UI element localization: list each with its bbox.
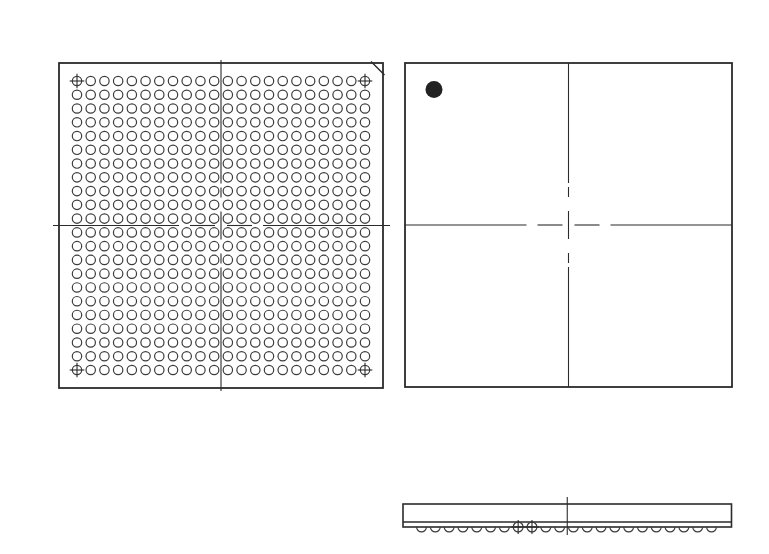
- solder-ball-pad: [333, 228, 342, 237]
- solder-ball-pad: [305, 228, 314, 237]
- solder-ball-pad: [182, 296, 191, 305]
- solder-ball-pad: [251, 76, 260, 85]
- solder-ball-pad: [113, 241, 122, 250]
- solder-ball-pad: [113, 186, 122, 195]
- solder-ball-pad: [141, 159, 150, 168]
- solder-ball-pad: [237, 352, 246, 361]
- solder-ball-pad: [72, 200, 81, 209]
- solder-ball-pad: [196, 310, 205, 319]
- solder-ball-pad: [305, 352, 314, 361]
- solder-ball-pad: [278, 76, 287, 85]
- solder-ball-pad: [72, 324, 81, 333]
- solder-ball-pad: [251, 296, 260, 305]
- solder-ball-pad: [168, 118, 177, 127]
- solder-ball-pad: [113, 310, 122, 319]
- solder-ball-pad: [72, 283, 81, 292]
- solder-ball-pad: [319, 283, 328, 292]
- solder-ball-pad: [223, 131, 232, 140]
- solder-ball-pad: [305, 338, 314, 347]
- solder-ball-pad: [292, 186, 301, 195]
- solder-ball-pad: [168, 90, 177, 99]
- solder-ball-pad: [86, 186, 95, 195]
- solder-ball-pad: [347, 90, 356, 99]
- solder-ball-pad: [319, 296, 328, 305]
- package-drawing-canvas: [0, 0, 769, 554]
- solder-ball-pad: [223, 76, 232, 85]
- solder-ball-pad: [209, 228, 218, 237]
- solder-ball-pad: [237, 173, 246, 182]
- solder-ball-pad: [86, 104, 95, 113]
- solder-ball-pad: [278, 338, 287, 347]
- solder-ball-pad: [141, 310, 150, 319]
- solder-ball-pad: [319, 131, 328, 140]
- package-top-view: [405, 63, 732, 387]
- solder-ball-pad: [209, 76, 218, 85]
- solder-ball-pad: [196, 104, 205, 113]
- solder-ball-pad: [141, 131, 150, 140]
- solder-ball-pad: [72, 338, 81, 347]
- solder-ball-pad: [237, 104, 246, 113]
- solder-ball-pad: [251, 255, 260, 264]
- solder-ball-pad: [209, 131, 218, 140]
- solder-ball-pad: [223, 159, 232, 168]
- solder-ball-pad: [347, 269, 356, 278]
- solder-ball-pad: [347, 76, 356, 85]
- solder-ball-pad: [251, 214, 260, 223]
- solder-ball-pad: [127, 145, 136, 154]
- solder-ball-pad: [86, 145, 95, 154]
- solder-ball-pad: [319, 90, 328, 99]
- solder-ball-pad: [72, 214, 81, 223]
- solder-ball-pad: [196, 118, 205, 127]
- solder-ball-pad: [182, 365, 191, 374]
- solder-ball-pad: [347, 173, 356, 182]
- solder-ball-pad: [264, 296, 273, 305]
- solder-ball-pad: [237, 159, 246, 168]
- solder-ball-pad: [237, 310, 246, 319]
- solder-ball-pad: [209, 241, 218, 250]
- solder-ball-pad: [333, 159, 342, 168]
- solder-ball-pad: [86, 338, 95, 347]
- solder-ball-pad: [196, 365, 205, 374]
- solder-ball-pad: [360, 241, 369, 250]
- solder-ball-pad: [86, 269, 95, 278]
- solder-ball-pad: [155, 214, 164, 223]
- solder-ball-pad: [127, 214, 136, 223]
- solder-ball-pad: [168, 200, 177, 209]
- solder-ball-pad: [182, 145, 191, 154]
- solder-ball-pad: [305, 241, 314, 250]
- solder-ball-pad: [182, 283, 191, 292]
- solder-ball-pad: [237, 269, 246, 278]
- solder-ball-pad: [196, 159, 205, 168]
- solder-ball-pad: [237, 90, 246, 99]
- solder-ball-pad: [264, 310, 273, 319]
- solder-ball-pad: [251, 310, 260, 319]
- solder-ball-pad: [168, 76, 177, 85]
- solder-ball-pad: [278, 90, 287, 99]
- solder-ball-pad: [333, 186, 342, 195]
- solder-ball-pad: [127, 365, 136, 374]
- solder-ball-pad: [347, 352, 356, 361]
- solder-ball-pad: [86, 118, 95, 127]
- solder-ball-pad: [305, 365, 314, 374]
- solder-ball-pad: [127, 338, 136, 347]
- solder-ball-pad: [209, 118, 218, 127]
- solder-ball-pad: [113, 200, 122, 209]
- solder-ball-pad: [100, 365, 109, 374]
- solder-ball-pad: [196, 131, 205, 140]
- solder-ball-pad: [168, 131, 177, 140]
- solder-ball-pad: [223, 173, 232, 182]
- solder-ball-pad: [155, 173, 164, 182]
- solder-ball-pad: [264, 159, 273, 168]
- solder-ball-pad: [292, 200, 301, 209]
- solder-ball-pad: [100, 338, 109, 347]
- solder-ball-pad: [305, 324, 314, 333]
- solder-ball-pad: [141, 76, 150, 85]
- solder-ball-pad: [182, 241, 191, 250]
- solder-ball-pad: [264, 283, 273, 292]
- solder-ball-pad: [251, 145, 260, 154]
- solder-ball-pad: [168, 159, 177, 168]
- solder-ball-pad: [223, 283, 232, 292]
- solder-ball-pad: [100, 186, 109, 195]
- solder-ball-pad: [305, 173, 314, 182]
- solder-ball-pad: [127, 76, 136, 85]
- solder-ball-pad: [113, 159, 122, 168]
- solder-ball-pad: [127, 159, 136, 168]
- solder-ball-pad: [278, 214, 287, 223]
- solder-ball-pad: [360, 90, 369, 99]
- solder-ball-pad: [264, 269, 273, 278]
- solder-ball-pad: [155, 241, 164, 250]
- solder-ball-pad: [209, 352, 218, 361]
- solder-ball-pad: [100, 228, 109, 237]
- solder-ball-pad: [127, 352, 136, 361]
- solder-ball-pad: [264, 228, 273, 237]
- solder-ball-pad: [141, 90, 150, 99]
- solder-ball-pad: [347, 118, 356, 127]
- solder-ball-pad: [209, 145, 218, 154]
- solder-ball-pad: [168, 214, 177, 223]
- solder-ball-pad: [292, 352, 301, 361]
- solder-ball-pad: [141, 118, 150, 127]
- solder-ball-pad: [168, 104, 177, 113]
- solder-ball-pad: [264, 338, 273, 347]
- solder-ball-pad: [127, 173, 136, 182]
- solder-ball-pad: [72, 228, 81, 237]
- solder-ball-pad: [113, 118, 122, 127]
- solder-ball-pad: [141, 214, 150, 223]
- solder-ball-pad: [168, 365, 177, 374]
- solder-ball-pad: [100, 214, 109, 223]
- solder-ball-pad: [113, 173, 122, 182]
- solder-ball-pad: [305, 76, 314, 85]
- solder-ball-pad: [292, 145, 301, 154]
- solder-ball-pad: [333, 118, 342, 127]
- solder-ball-pad: [305, 214, 314, 223]
- solder-ball-pad: [278, 324, 287, 333]
- solder-ball-pad: [237, 283, 246, 292]
- solder-ball-pad: [72, 269, 81, 278]
- solder-ball-pad: [333, 76, 342, 85]
- solder-ball-pad: [319, 200, 328, 209]
- solder-ball-pad: [86, 90, 95, 99]
- solder-ball-pad: [100, 310, 109, 319]
- solder-ball-pad: [319, 352, 328, 361]
- solder-ball-pad: [264, 76, 273, 85]
- solder-ball-pad: [278, 200, 287, 209]
- solder-ball-pad: [305, 200, 314, 209]
- solder-ball-pad: [72, 241, 81, 250]
- solder-ball-pad: [347, 283, 356, 292]
- solder-ball-pad: [100, 145, 109, 154]
- solder-ball-pad: [278, 228, 287, 237]
- solder-ball-pad: [113, 76, 122, 85]
- solder-ball-pad: [223, 338, 232, 347]
- solder-ball-pad: [333, 338, 342, 347]
- solder-ball-pad: [292, 324, 301, 333]
- solder-ball-pad: [278, 352, 287, 361]
- solder-ball-pad: [209, 310, 218, 319]
- solder-ball-pad: [223, 186, 232, 195]
- solder-ball-pad: [305, 118, 314, 127]
- solder-ball-pad: [292, 310, 301, 319]
- solder-ball-pad: [141, 324, 150, 333]
- solder-ball-pad: [168, 145, 177, 154]
- solder-ball-pad: [223, 324, 232, 333]
- solder-ball-pad: [292, 365, 301, 374]
- solder-ball-pad: [278, 241, 287, 250]
- solder-ball-pad: [347, 186, 356, 195]
- solder-ball-pad: [360, 200, 369, 209]
- solder-ball-pad: [100, 255, 109, 264]
- solder-ball-pad: [100, 352, 109, 361]
- solder-ball-pad: [319, 255, 328, 264]
- solder-ball-pad: [264, 173, 273, 182]
- solder-ball-pad: [86, 324, 95, 333]
- solder-ball-pad: [264, 90, 273, 99]
- solder-ball-pad: [127, 186, 136, 195]
- solder-ball-pad: [86, 159, 95, 168]
- solder-ball-pad: [237, 186, 246, 195]
- solder-ball-pad: [278, 173, 287, 182]
- solder-ball-pad: [347, 228, 356, 237]
- solder-ball-pad: [155, 283, 164, 292]
- solder-ball-pad: [347, 131, 356, 140]
- solder-ball-pad: [360, 104, 369, 113]
- solder-ball-pad: [168, 269, 177, 278]
- solder-ball-pad: [292, 283, 301, 292]
- solder-ball-pad: [333, 255, 342, 264]
- solder-ball-pad: [278, 283, 287, 292]
- solder-ball-pad: [278, 118, 287, 127]
- solder-ball-pad: [113, 104, 122, 113]
- solder-ball-pad: [237, 338, 246, 347]
- solder-ball-pad: [333, 365, 342, 374]
- solder-ball-pad: [168, 228, 177, 237]
- solder-ball-pad: [155, 296, 164, 305]
- solder-ball-pad: [292, 214, 301, 223]
- solder-ball-pad: [292, 269, 301, 278]
- solder-ball-pad: [86, 200, 95, 209]
- solder-ball-pad: [155, 269, 164, 278]
- solder-ball-pad: [251, 159, 260, 168]
- solder-ball-pad: [305, 269, 314, 278]
- solder-ball-pad: [319, 228, 328, 237]
- solder-ball-pad: [333, 90, 342, 99]
- solder-ball-pad: [182, 338, 191, 347]
- solder-ball-pad: [182, 118, 191, 127]
- solder-ball-pad: [113, 269, 122, 278]
- solder-ball-pad: [155, 131, 164, 140]
- solder-ball-pad: [196, 76, 205, 85]
- solder-ball-pad: [86, 173, 95, 182]
- bga-package-drawing: [0, 0, 769, 554]
- solder-ball-pad: [264, 131, 273, 140]
- solder-ball-pad: [292, 131, 301, 140]
- solder-ball-pad: [113, 352, 122, 361]
- solder-ball-pad: [72, 159, 81, 168]
- solder-ball-pad: [182, 173, 191, 182]
- solder-ball-pad: [264, 118, 273, 127]
- solder-ball-pad: [168, 255, 177, 264]
- solder-ball-pad: [223, 104, 232, 113]
- solder-ball-pad: [360, 131, 369, 140]
- solder-ball-pad: [264, 214, 273, 223]
- solder-ball-pad: [182, 324, 191, 333]
- solder-ball-pad: [237, 255, 246, 264]
- solder-ball-pad: [333, 104, 342, 113]
- solder-ball-pad: [141, 269, 150, 278]
- solder-ball-pad: [237, 76, 246, 85]
- solder-ball-pad: [113, 324, 122, 333]
- solder-ball-pad: [209, 269, 218, 278]
- solder-ball-pad: [333, 131, 342, 140]
- solder-ball-pad: [251, 118, 260, 127]
- solder-ball-pad: [319, 269, 328, 278]
- solder-ball-pad: [278, 145, 287, 154]
- solder-ball-pad: [333, 173, 342, 182]
- solder-ball-pad: [360, 159, 369, 168]
- solder-ball-pad: [86, 283, 95, 292]
- solder-ball-pad: [72, 90, 81, 99]
- solder-ball-pad: [333, 283, 342, 292]
- solder-ball-pad: [113, 338, 122, 347]
- solder-ball-pad: [347, 310, 356, 319]
- solder-ball-pad: [319, 338, 328, 347]
- solder-ball-pad: [113, 145, 122, 154]
- solder-ball-pad: [141, 145, 150, 154]
- solder-ball-pad: [347, 296, 356, 305]
- solder-ball-pad: [209, 283, 218, 292]
- solder-ball-pad: [305, 104, 314, 113]
- solder-ball-pad: [155, 104, 164, 113]
- solder-ball-pad: [264, 255, 273, 264]
- solder-ball-pad: [182, 159, 191, 168]
- solder-ball-pad: [100, 104, 109, 113]
- solder-ball-pad: [86, 131, 95, 140]
- solder-ball-pad: [209, 255, 218, 264]
- solder-ball-pad: [278, 131, 287, 140]
- solder-ball-pad: [360, 283, 369, 292]
- solder-ball-pad: [292, 173, 301, 182]
- solder-ball-pad: [333, 145, 342, 154]
- solder-ball-pad: [360, 173, 369, 182]
- solder-ball-pad: [72, 104, 81, 113]
- solder-ball-pad: [100, 283, 109, 292]
- solder-ball-pad: [127, 269, 136, 278]
- solder-ball-pad: [360, 324, 369, 333]
- solder-ball-pad: [292, 296, 301, 305]
- solder-ball-pad: [86, 214, 95, 223]
- solder-ball-pad: [168, 324, 177, 333]
- solder-ball-pad: [237, 365, 246, 374]
- solder-ball-pad: [237, 214, 246, 223]
- solder-ball-pad: [264, 200, 273, 209]
- solder-ball-pad: [319, 214, 328, 223]
- solder-ball-pad: [168, 173, 177, 182]
- solder-ball-pad: [223, 200, 232, 209]
- solder-ball-pad: [127, 310, 136, 319]
- solder-ball-pad: [182, 76, 191, 85]
- solder-ball-pad: [292, 228, 301, 237]
- solder-ball-pad: [168, 310, 177, 319]
- solder-ball-pad: [223, 241, 232, 250]
- solder-ball-pad: [196, 241, 205, 250]
- solder-ball-pad: [182, 131, 191, 140]
- solder-ball-pad: [86, 228, 95, 237]
- solder-ball-pad: [360, 255, 369, 264]
- solder-ball-pad: [196, 338, 205, 347]
- solder-ball-pad: [360, 118, 369, 127]
- solder-ball-pad: [347, 145, 356, 154]
- solder-ball-pad: [182, 214, 191, 223]
- solder-ball-pad: [223, 118, 232, 127]
- solder-ball-pad: [264, 365, 273, 374]
- solder-ball-pad: [196, 90, 205, 99]
- solder-ball-pad: [182, 310, 191, 319]
- solder-ball-pad: [86, 255, 95, 264]
- solder-ball-pad: [223, 214, 232, 223]
- solder-ball-pad: [182, 352, 191, 361]
- solder-ball-pad: [182, 228, 191, 237]
- solder-ball-pad: [319, 104, 328, 113]
- solder-ball-pad: [127, 90, 136, 99]
- solder-ball-pad: [278, 296, 287, 305]
- solder-ball-pad: [127, 241, 136, 250]
- solder-ball-pad: [113, 365, 122, 374]
- solder-ball-pad: [305, 255, 314, 264]
- solder-ball-pad: [113, 90, 122, 99]
- solder-ball-pad: [319, 118, 328, 127]
- solder-ball-pad: [305, 145, 314, 154]
- solder-ball-pad: [251, 131, 260, 140]
- solder-ball-pad: [347, 159, 356, 168]
- solder-ball-pad: [100, 269, 109, 278]
- solder-ball-pad: [347, 104, 356, 113]
- solder-ball-pad: [196, 186, 205, 195]
- solder-ball-pad: [333, 324, 342, 333]
- solder-ball-pad: [278, 310, 287, 319]
- solder-ball-pad: [168, 338, 177, 347]
- solder-ball-pad: [305, 90, 314, 99]
- solder-ball-pad: [278, 104, 287, 113]
- solder-ball-pad: [113, 131, 122, 140]
- solder-ball-pad: [333, 214, 342, 223]
- solder-ball-pad: [127, 255, 136, 264]
